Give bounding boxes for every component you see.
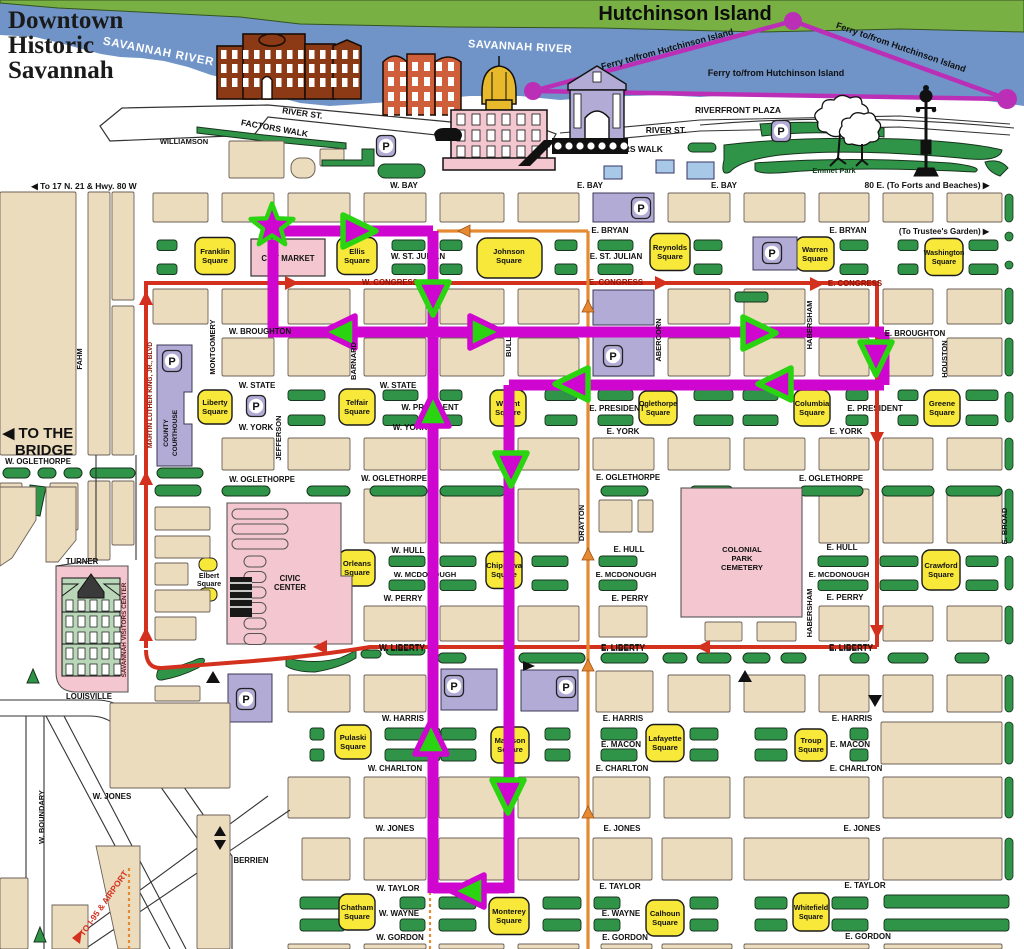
svg-text:E. MCDONOUGH: E. MCDONOUGH [596, 570, 657, 579]
svg-text:TURNER: TURNER [66, 557, 99, 566]
svg-text:E. BRYAN: E. BRYAN [829, 226, 866, 235]
svg-text:ABERCORN: ABERCORN [654, 318, 663, 361]
svg-text:W. JONES: W. JONES [376, 824, 415, 833]
svg-text:E. OGLETHORPE: E. OGLETHORPE [596, 473, 660, 482]
svg-text:E. CHARLTON: E. CHARLTON [830, 764, 883, 773]
svg-text:E. JONES: E. JONES [844, 824, 882, 833]
svg-text:RIVER ST.: RIVER ST. [646, 125, 687, 135]
svg-text:Pulaski: Pulaski [340, 733, 367, 742]
svg-text:Square: Square [496, 256, 522, 265]
svg-text:Savannah: Savannah [8, 57, 114, 84]
svg-text:W. WAYNE: W. WAYNE [379, 909, 420, 918]
svg-text:Greene: Greene [929, 399, 955, 408]
svg-text:E. BRYAN: E. BRYAN [591, 226, 628, 235]
svg-text:Hutchinson Island: Hutchinson Island [598, 3, 771, 25]
svg-text:W. BOUNDARY: W. BOUNDARY [37, 790, 46, 844]
svg-text:E. HARRIS: E. HARRIS [832, 714, 873, 723]
svg-text:W. MCDONOUGH: W. MCDONOUGH [394, 570, 456, 579]
svg-text:Square: Square [202, 256, 228, 265]
svg-text:W. HULL: W. HULL [392, 546, 425, 555]
svg-text:Square: Square [932, 257, 956, 266]
svg-text:FAHM: FAHM [75, 348, 84, 369]
svg-text:Troup: Troup [800, 736, 821, 745]
svg-text:W. CONGRESS: W. CONGRESS [362, 278, 418, 287]
svg-text:P: P [637, 203, 644, 215]
svg-text:Square: Square [802, 254, 828, 263]
svg-text:HOUSTON: HOUSTON [940, 340, 949, 377]
svg-text:◀ To 17 N. 21 & Hwy. 80 W: ◀ To 17 N. 21 & Hwy. 80 W [30, 181, 137, 191]
svg-text:Lafayette: Lafayette [648, 734, 681, 743]
svg-text:W. YORK: W. YORK [239, 423, 274, 432]
svg-text:Reynolds: Reynolds [653, 243, 687, 252]
svg-text:E. MACON: E. MACON [830, 740, 870, 749]
svg-text:W. PERRY: W. PERRY [384, 594, 423, 603]
svg-text:Square: Square [799, 408, 825, 417]
svg-text:Square: Square [344, 912, 370, 921]
svg-text:W. LIBERTY: W. LIBERTY [379, 644, 425, 653]
svg-text:E. BAY: E. BAY [577, 181, 604, 190]
svg-text:Square: Square [197, 579, 221, 588]
svg-text:W. STATE: W. STATE [239, 381, 276, 390]
svg-text:W. OGLETHORPE: W. OGLETHORPE [229, 475, 295, 484]
svg-text:E. CHARLTON: E. CHARLTON [596, 764, 649, 773]
svg-text:E. HARRIS: E. HARRIS [603, 714, 644, 723]
svg-text:W. HARRIS: W. HARRIS [382, 714, 425, 723]
svg-text:COUNTY: COUNTY [163, 419, 170, 447]
svg-text:Washington: Washington [924, 248, 965, 257]
svg-text:E. YORK: E. YORK [830, 427, 863, 436]
svg-text:CIVIC: CIVIC [280, 574, 301, 583]
svg-text:P: P [777, 126, 784, 138]
svg-text:Square: Square [344, 407, 370, 416]
svg-text:W. BAY: W. BAY [390, 181, 418, 190]
svg-text:BARNARD: BARNARD [349, 341, 358, 379]
svg-text:E. GORDON: E. GORDON [845, 932, 891, 941]
svg-text:E. TAYLOR: E. TAYLOR [844, 881, 886, 890]
svg-text:E. JONES: E. JONES [604, 824, 642, 833]
svg-text:CEMETERY: CEMETERY [721, 563, 763, 572]
svg-text:Orleans: Orleans [343, 559, 371, 568]
svg-text:BRIDGE: BRIDGE [15, 442, 73, 459]
svg-text:P: P [450, 681, 457, 693]
svg-text:W. OGLETHORPE: W. OGLETHORPE [361, 474, 427, 483]
svg-text:Square: Square [928, 570, 954, 579]
svg-text:Chatham: Chatham [341, 903, 374, 912]
svg-text:HABERSHAM: HABERSHAM [805, 589, 814, 638]
svg-text:Liberty: Liberty [202, 398, 228, 407]
svg-text:Square: Square [344, 256, 370, 265]
svg-text:E. HULL: E. HULL [826, 543, 857, 552]
svg-text:W. BROUGHTON: W. BROUGHTON [229, 327, 292, 336]
svg-text:80 E. (To Forts and Beaches) ▶: 80 E. (To Forts and Beaches) ▶ [865, 180, 991, 190]
svg-text:◀ TO THE: ◀ TO THE [2, 425, 73, 442]
svg-text:E. BROUGHTON: E. BROUGHTON [885, 329, 946, 338]
svg-text:Square: Square [496, 916, 522, 925]
svg-text:E. LIBERTY: E. LIBERTY [829, 644, 874, 653]
svg-text:P: P [562, 682, 569, 694]
svg-text:Ferry to/from Hutchinson Islan: Ferry to/from Hutchinson Island [708, 68, 845, 78]
svg-text:E. BROAD: E. BROAD [1000, 507, 1009, 544]
svg-text:Square: Square [657, 252, 683, 261]
svg-text:E. PERRY: E. PERRY [826, 593, 864, 602]
svg-text:Calhoun: Calhoun [650, 909, 681, 918]
svg-text:P: P [768, 248, 775, 260]
svg-text:Square: Square [340, 742, 366, 751]
svg-text:Square: Square [202, 407, 228, 416]
svg-text:PARK: PARK [732, 554, 753, 563]
svg-text:Whitefield: Whitefield [794, 903, 828, 912]
svg-text:P: P [168, 356, 175, 368]
svg-text:W. CHARLTON: W. CHARLTON [368, 764, 423, 773]
svg-text:Crawford: Crawford [924, 561, 958, 570]
svg-text:BERRIEN: BERRIEN [233, 856, 268, 865]
svg-text:DRAYTON: DRAYTON [577, 505, 586, 541]
svg-text:E. OGLETHORPE: E. OGLETHORPE [799, 474, 863, 483]
svg-text:W. TAYLOR: W. TAYLOR [376, 884, 419, 893]
svg-text:Square: Square [799, 912, 823, 921]
svg-text:Square: Square [929, 408, 955, 417]
svg-text:E. CONGRESS: E. CONGRESS [589, 278, 643, 287]
svg-text:BULL: BULL [504, 337, 513, 357]
svg-text:E. PRESIDENT: E. PRESIDENT [589, 404, 645, 413]
svg-text:E. WAYNE: E. WAYNE [602, 909, 641, 918]
svg-text:RIVERFRONT PLAZA: RIVERFRONT PLAZA [695, 105, 781, 115]
svg-text:P: P [252, 401, 259, 413]
svg-text:Square: Square [798, 745, 824, 754]
svg-text:E. MACON: E. MACON [601, 740, 641, 749]
svg-text:(To Trustee's Garden) ▶: (To Trustee's Garden) ▶ [899, 227, 990, 236]
svg-text:W. JONES: W. JONES [93, 792, 132, 801]
svg-text:E. GORDON: E. GORDON [602, 933, 648, 942]
svg-text:P: P [382, 141, 389, 153]
svg-text:E. TAYLOR: E. TAYLOR [599, 882, 641, 891]
svg-text:E. BAY: E. BAY [711, 181, 738, 190]
svg-text:Franklin: Franklin [200, 247, 230, 256]
svg-text:E. HULL: E. HULL [613, 545, 644, 554]
svg-text:Square: Square [652, 918, 678, 927]
svg-text:E. YORK: E. YORK [607, 427, 640, 436]
svg-text:WILLIAMSON: WILLIAMSON [160, 137, 208, 146]
svg-text:E. LIBERTY: E. LIBERTY [601, 644, 646, 653]
svg-text:W. GORDON: W. GORDON [376, 933, 424, 942]
svg-text:Square: Square [646, 408, 670, 417]
svg-text:COURTHOUSE: COURTHOUSE [172, 409, 179, 456]
svg-text:W. STATE: W. STATE [380, 381, 417, 390]
svg-text:CENTER: CENTER [274, 583, 306, 592]
svg-text:Johnson: Johnson [493, 247, 525, 256]
svg-text:Historic: Historic [8, 32, 94, 59]
svg-text:COLONIAL: COLONIAL [722, 545, 762, 554]
svg-text:Downtown: Downtown [8, 7, 123, 34]
svg-text:E. CONGRESS: E. CONGRESS [828, 279, 882, 288]
svg-text:Monterey: Monterey [492, 907, 527, 916]
svg-text:E. PERRY: E. PERRY [611, 594, 649, 603]
svg-text:P: P [609, 351, 616, 363]
svg-text:SAVANNAH VISITORS CENTER: SAVANNAH VISITORS CENTER [121, 582, 128, 677]
svg-text:JEFFERSON: JEFFERSON [274, 415, 283, 460]
svg-text:Telfair: Telfair [346, 398, 368, 407]
svg-text:Ellis: Ellis [349, 247, 365, 256]
svg-text:MARTIN LUTHER KING, JR., BLVD: MARTIN LUTHER KING, JR., BLVD [147, 342, 154, 448]
svg-text:HABERSHAM: HABERSHAM [805, 301, 814, 350]
svg-text:MONTGOMERY: MONTGOMERY [208, 319, 217, 374]
svg-text:E. MCDONOUGH: E. MCDONOUGH [809, 570, 870, 579]
svg-text:Columbia: Columbia [795, 399, 830, 408]
svg-text:E. ST. JULIAN: E. ST. JULIAN [590, 252, 643, 261]
svg-text:Emmet Park: Emmet Park [812, 166, 856, 175]
svg-text:P: P [242, 694, 249, 706]
svg-text:Square: Square [652, 743, 678, 752]
svg-text:Warren: Warren [802, 245, 828, 254]
